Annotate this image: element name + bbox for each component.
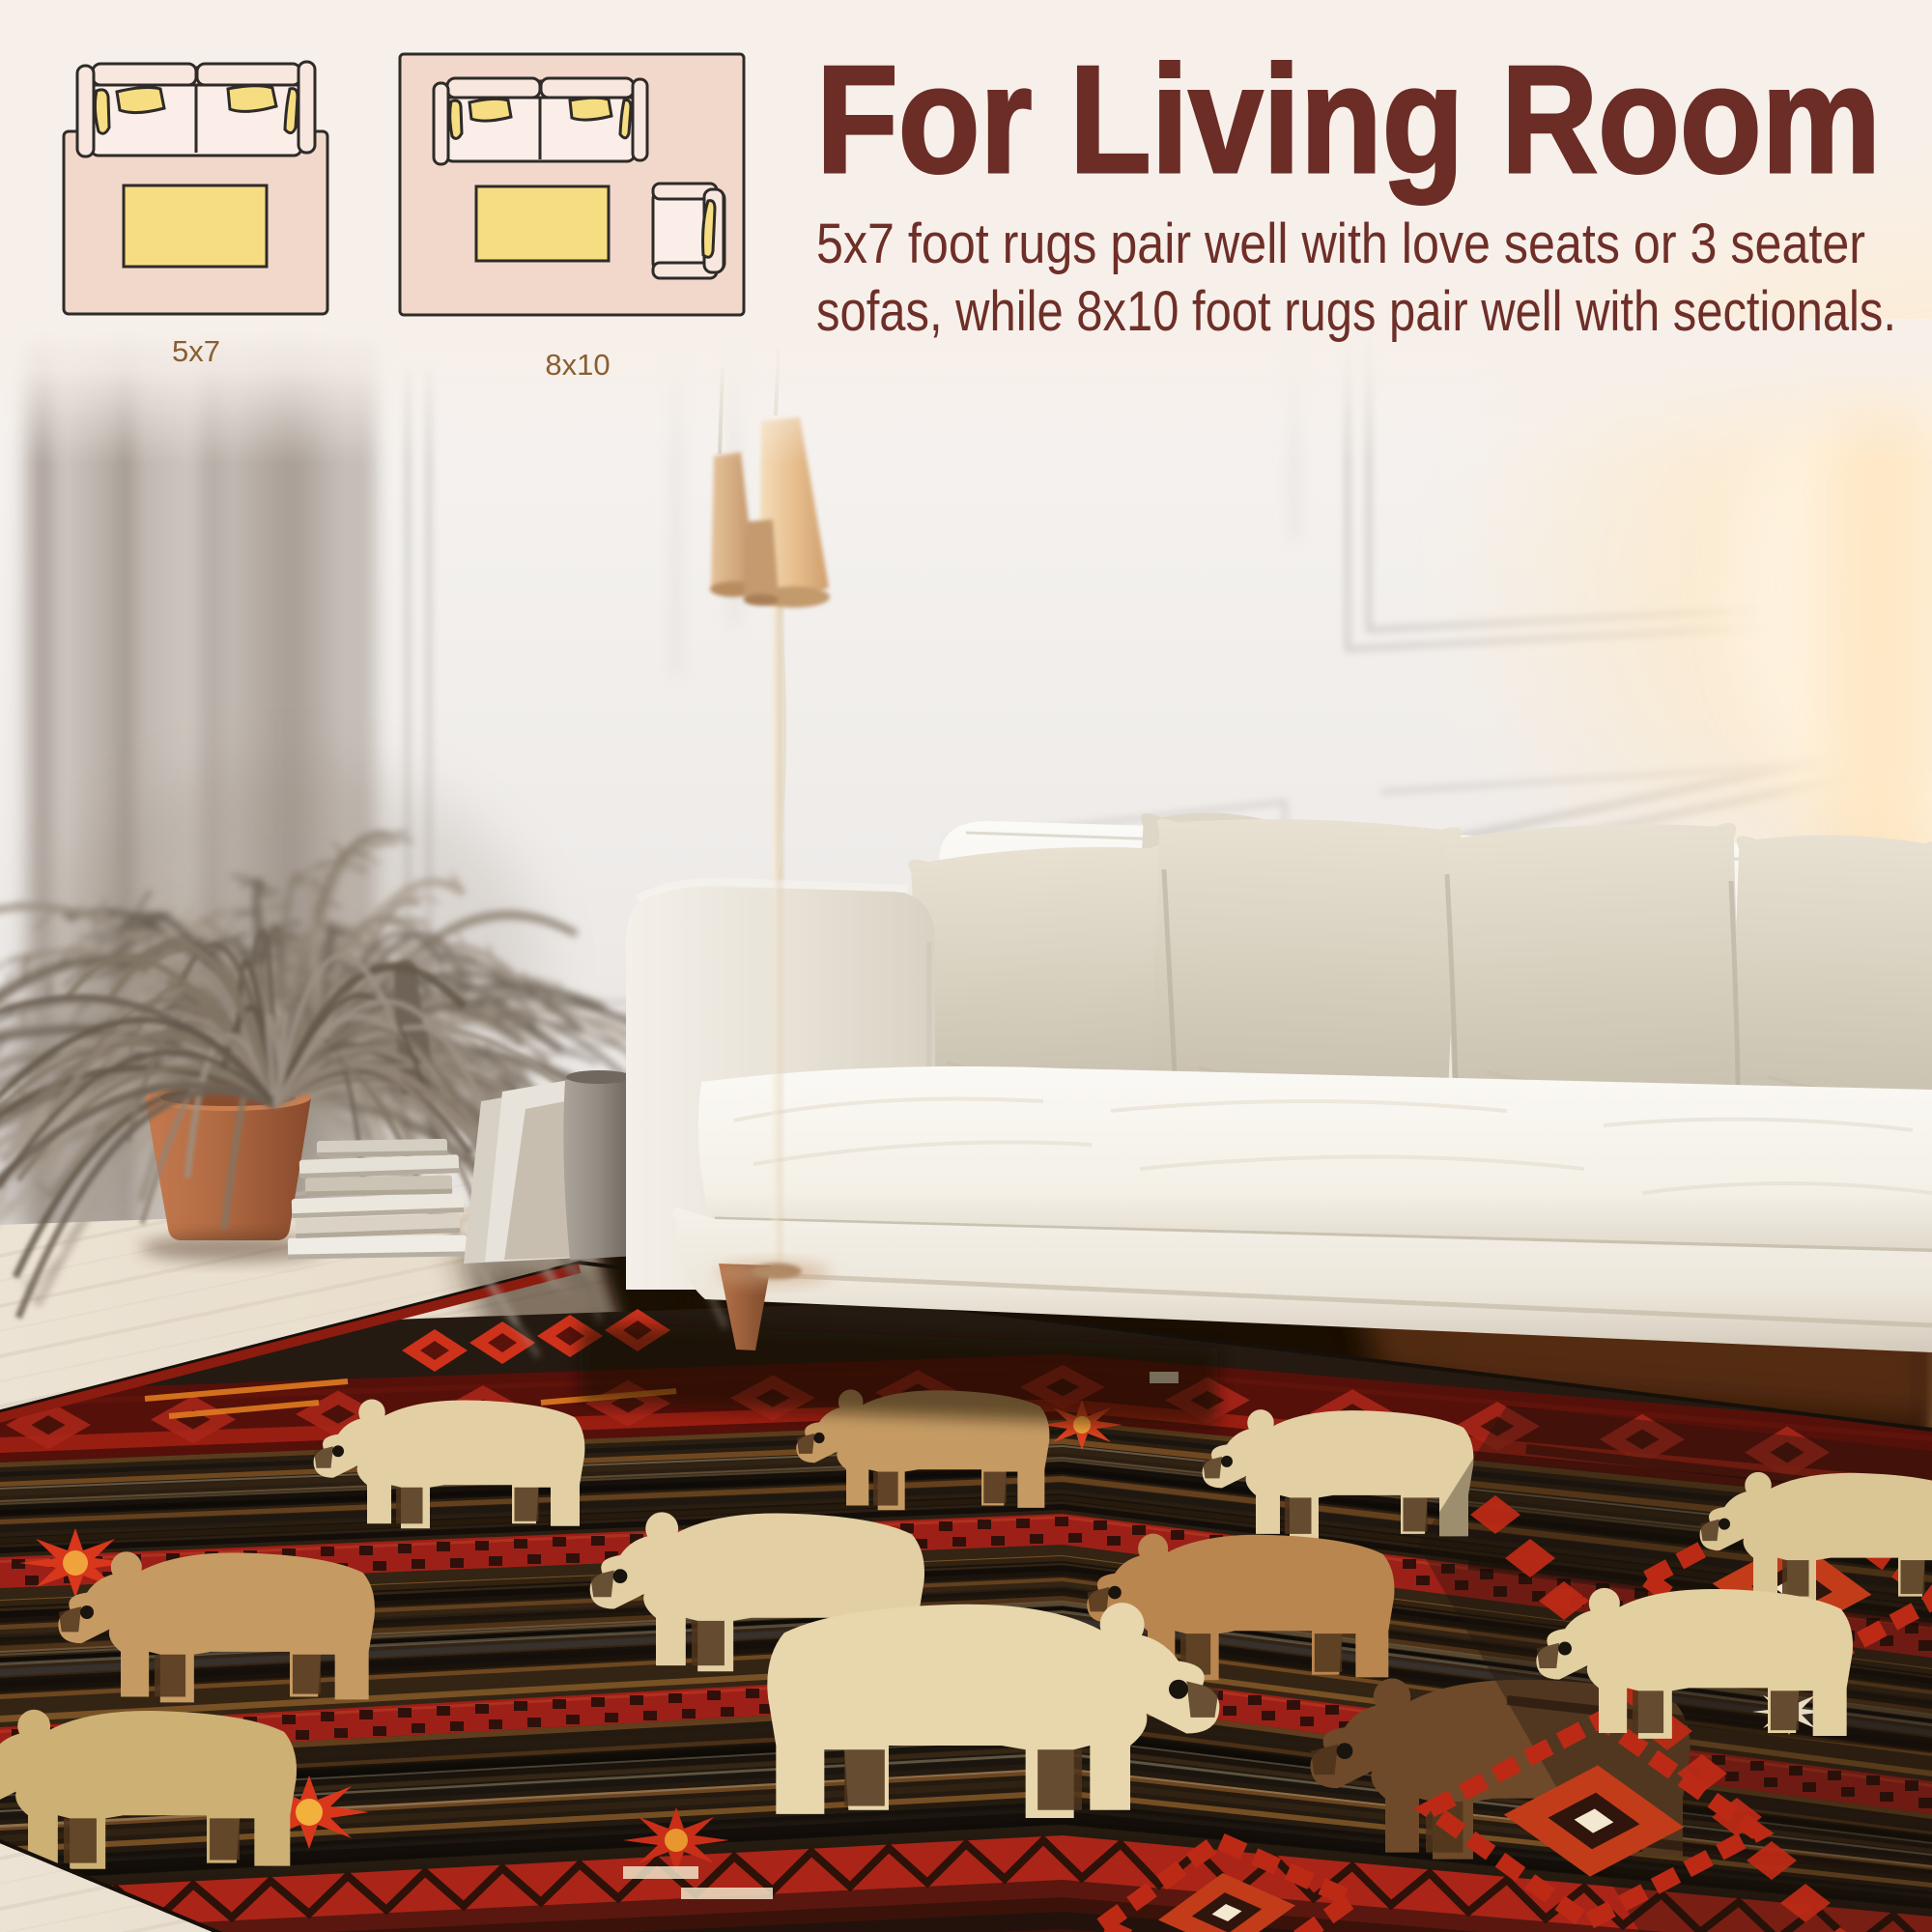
svg-text:5x7: 5x7 <box>172 334 220 368</box>
svg-text:For Living Room: For Living Room <box>816 35 1881 205</box>
svg-text:sofas, while 8x10 foot rugs pa: sofas, while 8x10 foot rugs pair well wi… <box>816 280 1896 343</box>
svg-text:8x10: 8x10 <box>545 348 610 382</box>
svg-text:5x7 foot rugs pair well with l: 5x7 foot rugs pair well with love seats … <box>816 213 1865 275</box>
